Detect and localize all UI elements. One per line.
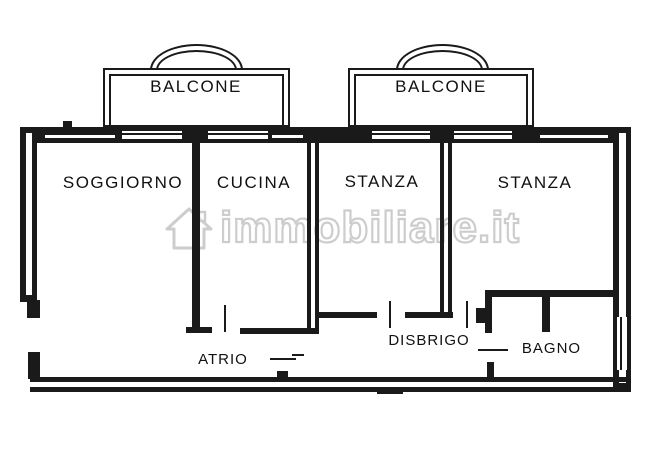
wall-stanza-stanza-line2: [448, 143, 452, 315]
wall-bagno-door-jamb: [476, 308, 486, 323]
window-cucina: [208, 129, 268, 141]
wall-stanza-left-bottom: [319, 312, 377, 318]
floor-plan: immobiliare.it: [0, 0, 663, 457]
room-label-soggiorno: SOGGIORNO: [48, 174, 198, 192]
wall-bagno-partition: [542, 297, 550, 332]
wall-soggiorno-cucina-foot: [186, 327, 212, 333]
room-label-balcone-left: BALCONE: [126, 78, 266, 96]
room-label-disbrigo: DISBRIGO: [366, 332, 492, 350]
room-label-cucina: CUCINA: [194, 174, 314, 192]
wall-cucina-bottom: [240, 328, 319, 334]
wall-cucina-stanza-line1: [307, 143, 311, 333]
room-label-stanza-right: STANZA: [472, 174, 598, 192]
wall-bottom-inner-line: [30, 387, 631, 392]
wall-bottom-left-riser: [28, 352, 40, 379]
door-leaf-stanza-left: [389, 301, 391, 328]
window-bagno: [615, 317, 629, 370]
door-leaf-cucina: [224, 305, 226, 332]
wall-stanza-stanza-line1: [440, 143, 444, 315]
watermark-text: immobiliare.it: [220, 199, 520, 257]
room-label-balcone-right: BALCONE: [371, 78, 511, 96]
wall-top-cavity-3: [540, 135, 608, 138]
door-leaf-stanza-right: [466, 301, 468, 328]
room-label-bagno: BAGNO: [494, 340, 609, 358]
wall-bottom-outer-line: [30, 377, 631, 382]
entry-arrow-tip: [292, 354, 304, 356]
wall-stanza-stanza-foot: [405, 312, 453, 318]
wall-bagno-top: [485, 290, 618, 297]
wall-soggiorno-cucina: [192, 143, 200, 333]
room-label-atrio: ATRIO: [168, 351, 278, 369]
window-soggiorno: [122, 129, 182, 141]
window-stanza-left: [372, 129, 430, 141]
window-stanza-right: [454, 129, 512, 141]
wall-top-cavity-2: [272, 135, 303, 138]
room-label-stanza-left: STANZA: [319, 173, 445, 191]
entrance-door-jamb: [277, 371, 288, 377]
wall-bottom-jog: [377, 389, 403, 394]
wall-cucina-stanza-line2: [315, 143, 319, 333]
wall-left-cavity: [26, 133, 32, 295]
wall-top-cavity-1: [45, 135, 115, 138]
wall-top-tab: [63, 121, 72, 127]
wall-left-stub: [27, 300, 40, 318]
watermark: immobiliare.it: [163, 199, 520, 257]
wall-bagno-left: [485, 290, 492, 333]
house-icon: [163, 204, 215, 252]
wall-bagno-bottom-stub: [487, 362, 494, 378]
